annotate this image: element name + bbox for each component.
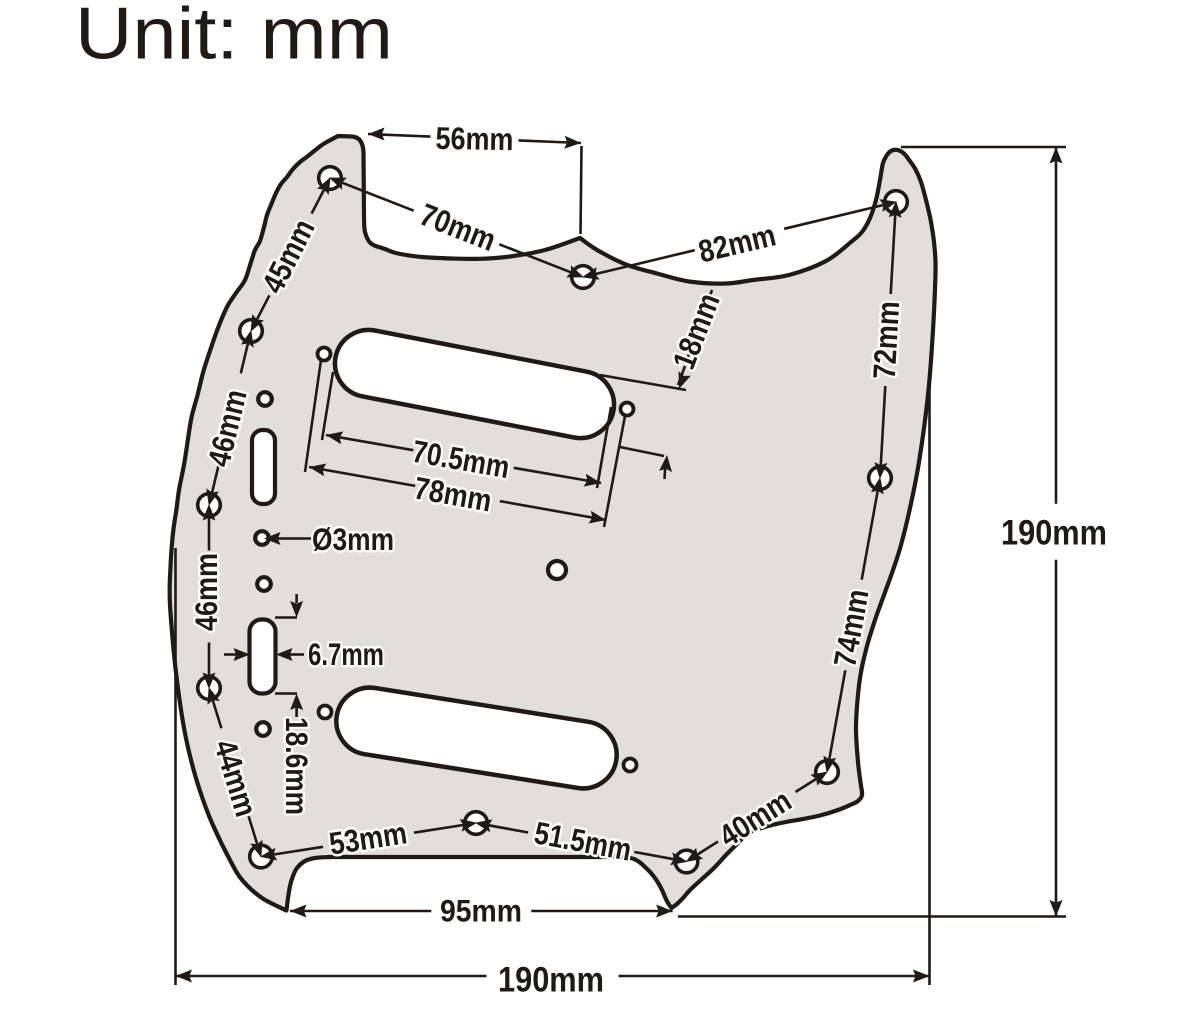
svg-text:Unit: mm: Unit: mm [75, 0, 393, 75]
svg-text:190mm: 190mm [498, 961, 604, 1000]
svg-text:56mm: 56mm [435, 120, 514, 157]
svg-text:72mm: 72mm [866, 300, 906, 380]
svg-text:190mm: 190mm [1001, 514, 1107, 553]
svg-text:Ø3mm: Ø3mm [312, 521, 394, 557]
svg-text:18.6mm: 18.6mm [279, 717, 315, 815]
svg-text:95mm: 95mm [440, 893, 522, 929]
svg-text:6.7mm: 6.7mm [308, 636, 384, 672]
svg-text:46mm: 46mm [188, 553, 224, 631]
